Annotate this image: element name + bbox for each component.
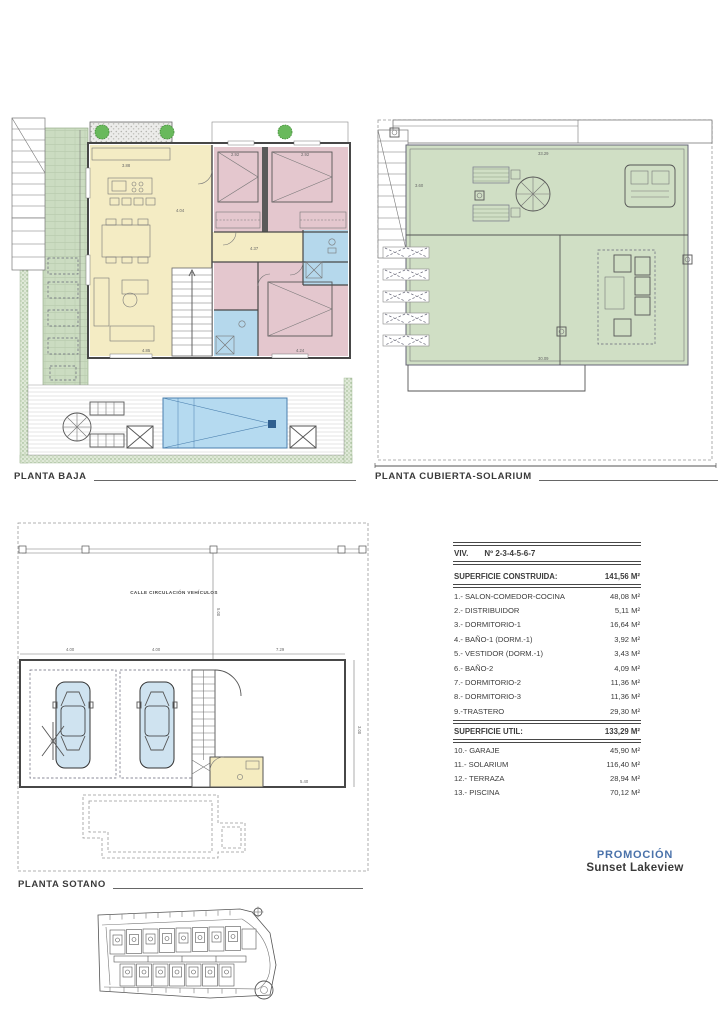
table-row: 13.- PISCINA70,12 M² [453,786,641,800]
svg-text:4.24: 4.24 [296,348,305,353]
interior-stairs [172,268,212,356]
garage-level: 4.00 4.00 7.29 [20,647,362,787]
svg-text:7.29: 7.29 [276,647,285,652]
planta-cubierta-label: PLANTA CUBIERTA-SOLARIUM [375,471,718,482]
planta-baja-label: PLANTA BAJA [14,471,356,482]
exterior-stairs [12,118,45,270]
table-row: 8.- DORMITORIO-311,36 M² [453,690,641,704]
promotion-block: PROMOCIÓN Sunset Lakeview [545,849,722,874]
parasol-table [63,413,91,441]
side-garden [43,128,88,395]
areas-table: VIV. Nº 2-3-4-5-6-7 SUPERFICIE CONSTRUID… [453,541,641,800]
door-arc [215,670,241,696]
solarium-drawing: 33.29 3.60 5.40 30.09 [373,115,718,468]
foundation-outline [83,795,245,858]
solarium-deck: 33.29 3.60 5.40 30.09 [390,128,692,365]
table-row: 9.-TRASTERO29,30 M² [453,704,641,718]
lot-row-bottom [120,964,234,986]
planta-baja-drawing: 3.88 4.04 4.37 2.92 2.92 4.85 4.24 [10,110,360,466]
street-label: CALLE CIRCULACIÓN VEHÍCULOS [130,588,218,595]
svg-text:2.92: 2.92 [301,152,310,157]
svg-text:4.04: 4.04 [176,208,185,213]
table-row: 12.- TERRAZA28,94 M² [453,772,641,786]
svg-text:3.60: 3.60 [415,183,424,188]
svg-text:2.92: 2.92 [231,152,240,157]
house-ground-floor: 3.88 4.04 4.37 2.92 2.92 4.85 4.24 [86,141,350,358]
table-row: 4.- BAÑO-1 (DORM.-1)3,92 M² [453,632,641,646]
svg-text:3.00: 3.00 [357,726,362,735]
pool-terrace [28,385,344,455]
promotion-title: PROMOCIÓN [545,849,722,861]
bedroom-3 [268,147,348,232]
table-row: 2.- DISTRIBUIDOR5,11 M² [453,603,641,617]
exterior-stairs [378,130,408,258]
roof-strip [393,120,712,143]
svg-text:30.09: 30.09 [538,356,549,361]
pool [163,398,287,448]
table-row: 1.- SALON-COMEDOR-COCINA48,08 M² [453,589,641,603]
table-row: 11.- SOLARIUM116,40 M² [453,758,641,772]
unit-label: VIV. [454,549,468,558]
svg-text:5.00: 5.00 [216,608,221,617]
bathroom-1 [303,230,348,285]
car-icon [137,682,177,768]
site-plan [90,903,290,1013]
divider [453,739,641,743]
lower-terrace-outline [408,365,585,391]
svg-text:33.29: 33.29 [538,151,549,156]
divider [453,542,641,546]
svg-text:3.88: 3.88 [122,163,131,168]
middle-road [114,956,246,962]
room-list: 1.- SALON-COMEDOR-COCINA48,08 M² 2.- DIS… [453,589,641,719]
lot-row-top [110,927,256,955]
table-row: 6.- BAÑO-24,09 M² [453,661,641,675]
divider [453,720,641,724]
unit-header: VIV. Nº 2-3-4-5-6-7 [453,547,641,560]
vestidor [214,262,258,310]
parasol-icon [516,177,550,211]
car-icon [53,682,93,768]
svg-text:5.40: 5.40 [300,779,309,784]
svg-text:4.85: 4.85 [142,348,151,353]
constructed-area-row: SUPERFICIE CONSTRUIDA: 141,56 M² [453,570,641,583]
promotion-name: Sunset Lakeview [545,862,722,874]
planta-sotano-label: PLANTA SOTANO [18,879,363,890]
table-row: 5.- VESTIDOR (DORM.-1)3,43 M² [453,647,641,661]
svg-text:4.37: 4.37 [250,246,259,251]
exterior-list: 10.- GARAJE45,90 M² 11.- SOLARIUM116,40 … [453,744,641,800]
plan-sheet: 3.88 4.04 4.37 2.92 2.92 4.85 4.24 [0,0,722,1024]
svg-text:4.00: 4.00 [66,647,75,652]
store-room [210,757,263,787]
street-structure: 5.00 CALLE CIRCULACIÓN VEHÍCULOS [19,546,366,660]
divider [453,561,641,565]
svg-text:4.00: 4.00 [152,647,161,652]
site-lots [110,927,256,987]
table-row: 3.- DORMITORIO-116,64 M² [453,618,641,632]
unit-number: Nº 2-3-4-5-6-7 [484,549,535,558]
divider [453,584,641,588]
table-row: 10.- GARAJE45,90 M² [453,744,641,758]
table-row: 7.- DORMITORIO-211,36 M² [453,675,641,689]
useful-area-row: SUPERFICIE UTIL: 133,29 M² [453,725,641,738]
sotano-drawing: 5.00 CALLE CIRCULACIÓN VEHÍCULOS 4.00 4.… [14,520,370,875]
